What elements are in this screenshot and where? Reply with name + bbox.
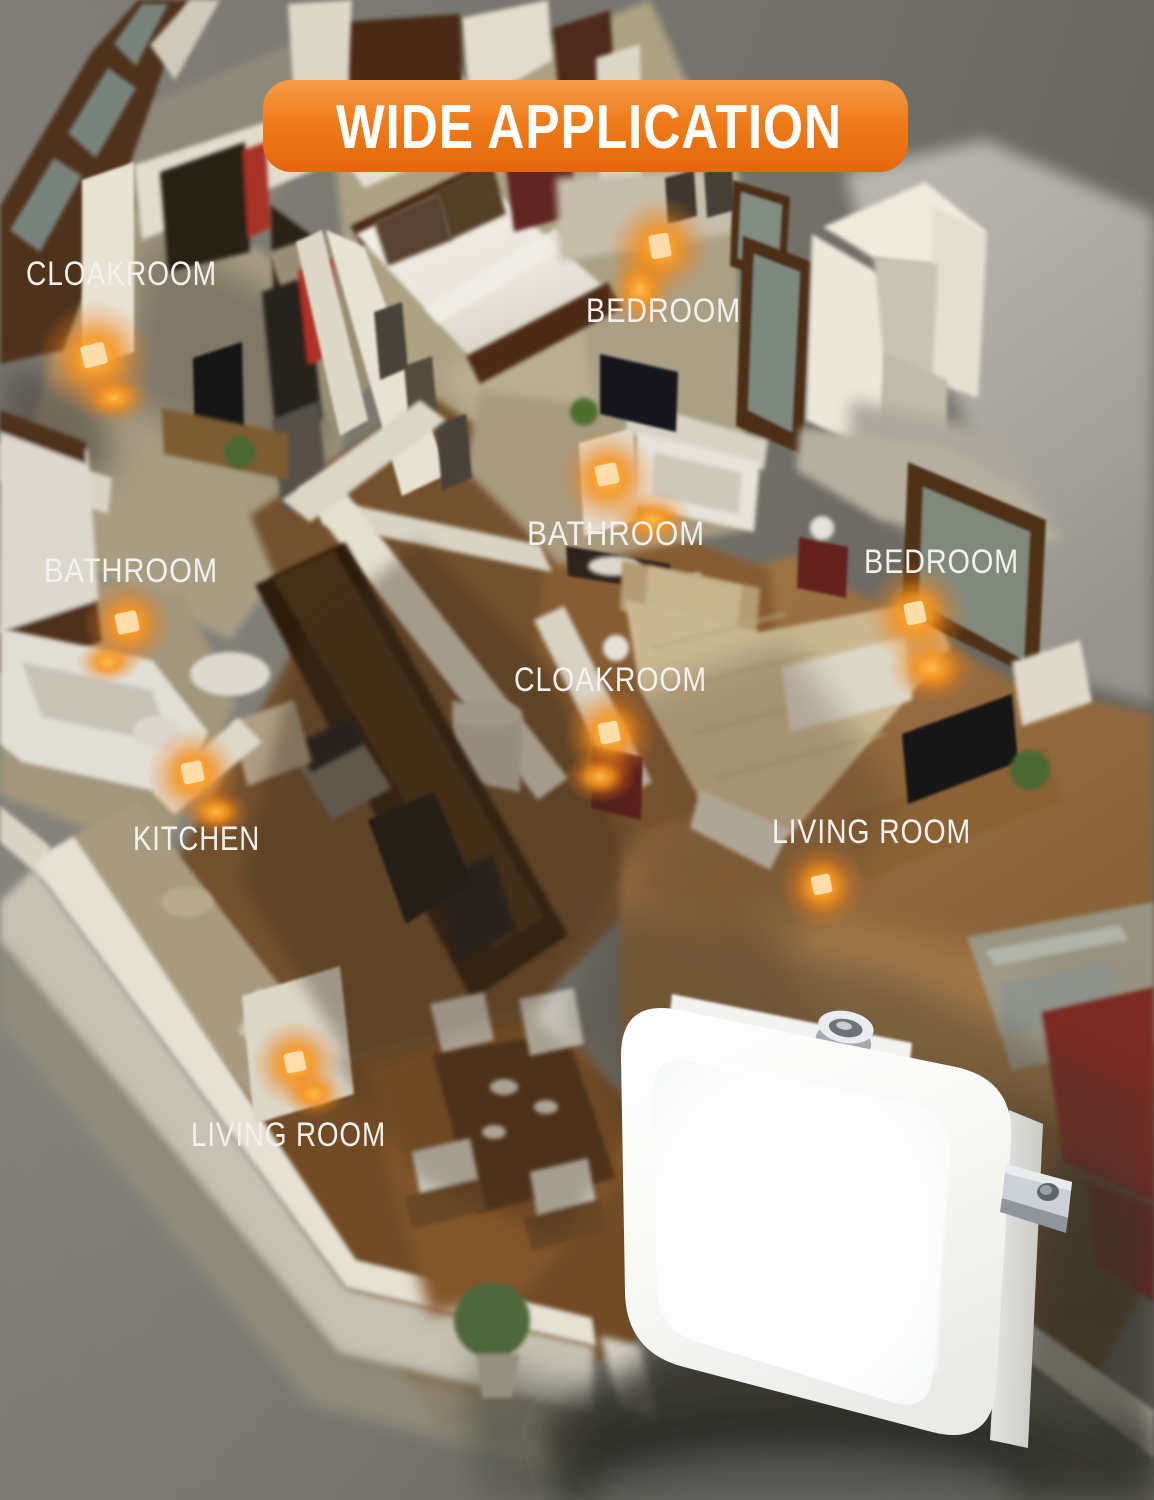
svg-text:LIVING ROOM: LIVING ROOM xyxy=(772,813,971,851)
svg-text:BEDROOM: BEDROOM xyxy=(864,543,1019,581)
svg-text:WIDE APPLICATION: WIDE APPLICATION xyxy=(336,93,842,162)
svg-text:LIVING ROOM: LIVING ROOM xyxy=(191,1116,386,1154)
svg-text:BATHROOM: BATHROOM xyxy=(44,552,218,590)
svg-text:CLOAKROOM: CLOAKROOM xyxy=(26,255,217,293)
svg-text:BATHROOM: BATHROOM xyxy=(527,515,705,553)
svg-text:CLOAKROOM: CLOAKROOM xyxy=(514,661,707,699)
svg-text:BEDROOM: BEDROOM xyxy=(586,292,741,330)
svg-text:KITCHEN: KITCHEN xyxy=(133,820,260,858)
